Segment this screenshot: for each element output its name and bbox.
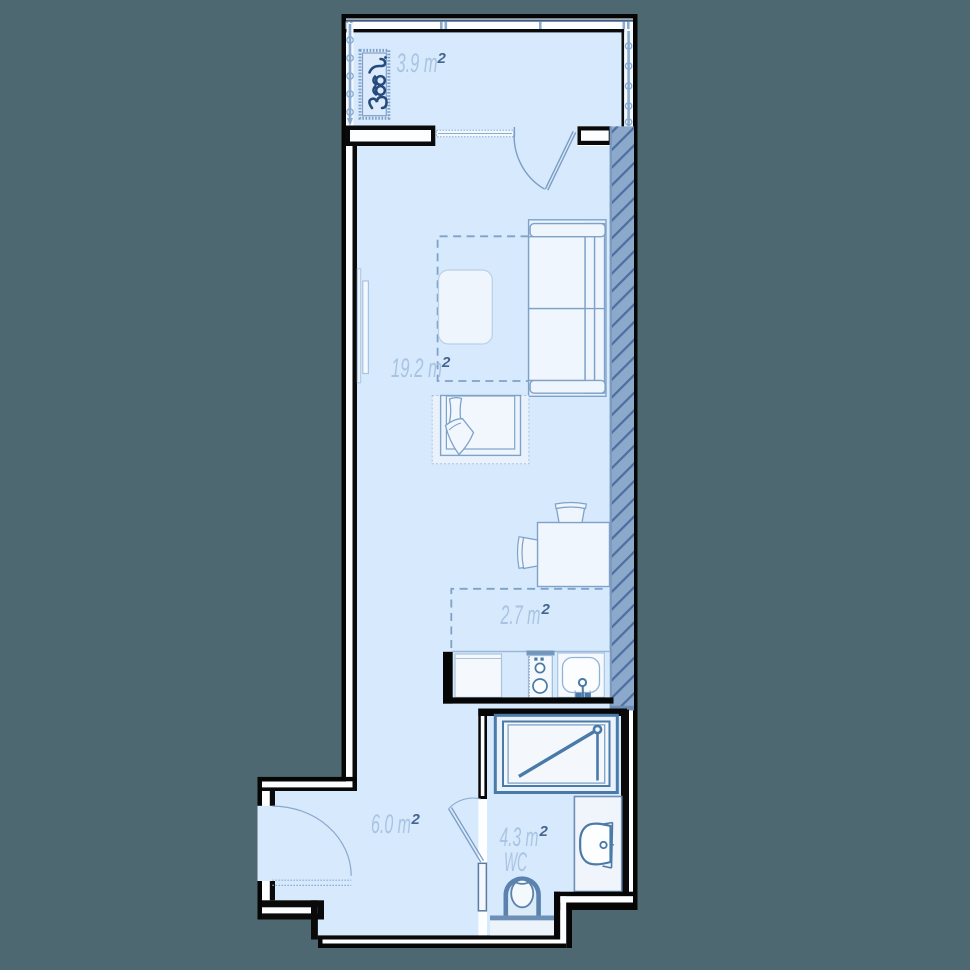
- svg-text:2: 2: [541, 601, 551, 618]
- svg-text:3.9 m: 3.9 m: [397, 48, 438, 78]
- svg-text:2.7 m: 2.7 m: [500, 600, 541, 630]
- svg-text:6.0 m: 6.0 m: [371, 809, 411, 839]
- svg-text:WC: WC: [504, 847, 527, 877]
- svg-text:2: 2: [411, 811, 421, 828]
- svg-text:19.2 m: 19.2 m: [391, 353, 442, 383]
- svg-text:2: 2: [539, 823, 549, 840]
- svg-text:2: 2: [441, 354, 451, 371]
- svg-text:2: 2: [437, 50, 447, 67]
